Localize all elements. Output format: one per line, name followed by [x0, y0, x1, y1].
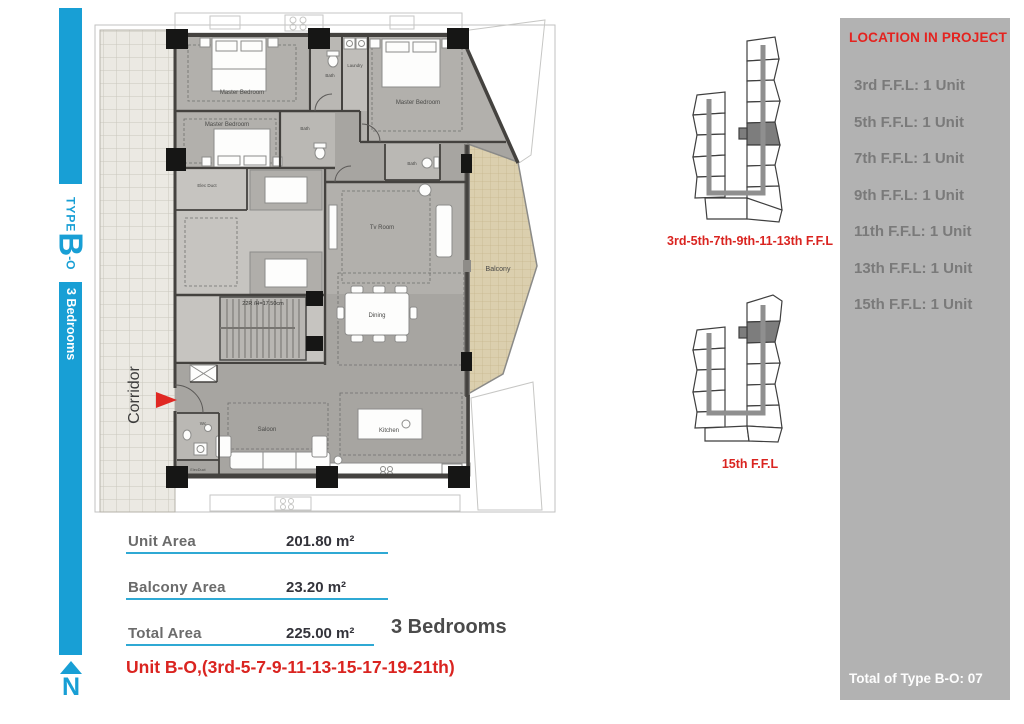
north-letter: N	[59, 674, 82, 700]
master-bedroom-1-label: Master Bedroom	[220, 90, 264, 96]
balcony: Balcony	[464, 144, 537, 396]
location-item: 13th F.F.L: 1 Unit	[854, 251, 1006, 288]
type-label: TYPEB-O	[59, 197, 83, 270]
keyplan-upper: 3rd-5th-7th-9th-11-13th F.F.L	[655, 35, 845, 248]
balcony-area-label: Balcony Area	[128, 579, 226, 596]
location-item: 5th F.F.L: 1 Unit	[854, 105, 1006, 142]
keyplan-upper-drawing	[685, 35, 815, 225]
type-tab-bar: TYPEB-O 3 Bedrooms	[59, 8, 82, 655]
type-tab-window: TYPEB-O	[59, 184, 82, 282]
keyplan-lower-drawing	[685, 283, 815, 448]
location-item: 9th F.F.L: 1 Unit	[854, 178, 1006, 215]
keyplan-lower: 15th F.F.L	[655, 283, 845, 471]
location-panel-total: Total of Type B-O: 07	[849, 671, 983, 686]
master-bedroom-3-label: Master Bedroom	[396, 100, 440, 106]
unit-area-label: Unit Area	[128, 533, 196, 550]
corridor-label: Corridor	[126, 365, 143, 423]
dining-label: Dining	[368, 313, 385, 319]
total-area-label: Total Area	[128, 625, 202, 642]
brochure-page: TYPEB-O 3 Bedrooms N	[0, 0, 1024, 724]
keyplan-upper-label: 3rd-5th-7th-9th-11-13th F.F.L	[655, 234, 845, 248]
total-area-row: Total Area 225.00 m²	[126, 622, 374, 646]
location-item: 11th F.F.L: 1 Unit	[854, 214, 1006, 251]
bedrooms-title: 3 Bedrooms	[391, 616, 507, 639]
stairs: 22R /H=17.50cm	[220, 297, 306, 360]
balcony-area-row: Balcony Area 23.20 m²	[126, 576, 388, 600]
bath-1-label: Bath	[325, 73, 335, 78]
north-arrow-icon: N	[59, 661, 82, 700]
unit-area-value: 201.80 m²	[286, 533, 354, 550]
location-panel-items: 3rd F.F.L: 1 Unit 5th F.F.L: 1 Unit 7th …	[854, 68, 1006, 324]
location-panel-title: LOCATION IN PROJECT	[849, 30, 1007, 45]
unit-note: Unit B-O,(3rd-5-7-9-11-13-15-17-19-21th)	[126, 657, 455, 678]
wc-label: Wc	[200, 421, 207, 426]
elec-duct-label: Elec Duct	[197, 183, 217, 188]
kitchen-label: Kitchen	[379, 428, 399, 434]
bedrooms-vertical-label: 3 Bedrooms	[59, 288, 82, 380]
location-item: 7th F.F.L: 1 Unit	[854, 141, 1006, 178]
keyplan-lower-label: 15th F.F.L	[655, 457, 845, 471]
bath-2-label: Bath	[300, 126, 310, 131]
saloon-label: Saloon	[258, 427, 277, 433]
bath-3-label: Bath	[407, 161, 417, 166]
location-panel: LOCATION IN PROJECT 3rd F.F.L: 1 Unit 5t…	[840, 18, 1010, 700]
floor-plan: Corridor Balcony	[90, 5, 565, 520]
type-suffix: -O	[64, 256, 78, 269]
total-area-value: 225.00 m²	[286, 625, 354, 642]
type-word: TYPE	[64, 197, 78, 232]
balcony-area-value: 23.20 m²	[286, 579, 346, 596]
master-bedroom-2-label: Master Bedroom	[205, 122, 249, 128]
type-letter: B	[53, 232, 90, 256]
unit-area-row: Unit Area 201.80 m²	[126, 530, 388, 554]
laundry-label: Laundry	[347, 63, 363, 68]
tv-room-label: Tv Room	[370, 225, 394, 231]
elec-duct-2-label: ElecDuct	[190, 468, 206, 472]
keyplan-lower-units	[693, 295, 782, 442]
balcony-label: Balcony	[486, 266, 511, 273]
location-item: 15th F.F.L: 1 Unit	[854, 287, 1006, 324]
corridor-floor	[100, 30, 175, 512]
location-item: 3rd F.F.L: 1 Unit	[854, 68, 1006, 105]
stair-note: 22R /H=17.50cm	[242, 301, 284, 307]
